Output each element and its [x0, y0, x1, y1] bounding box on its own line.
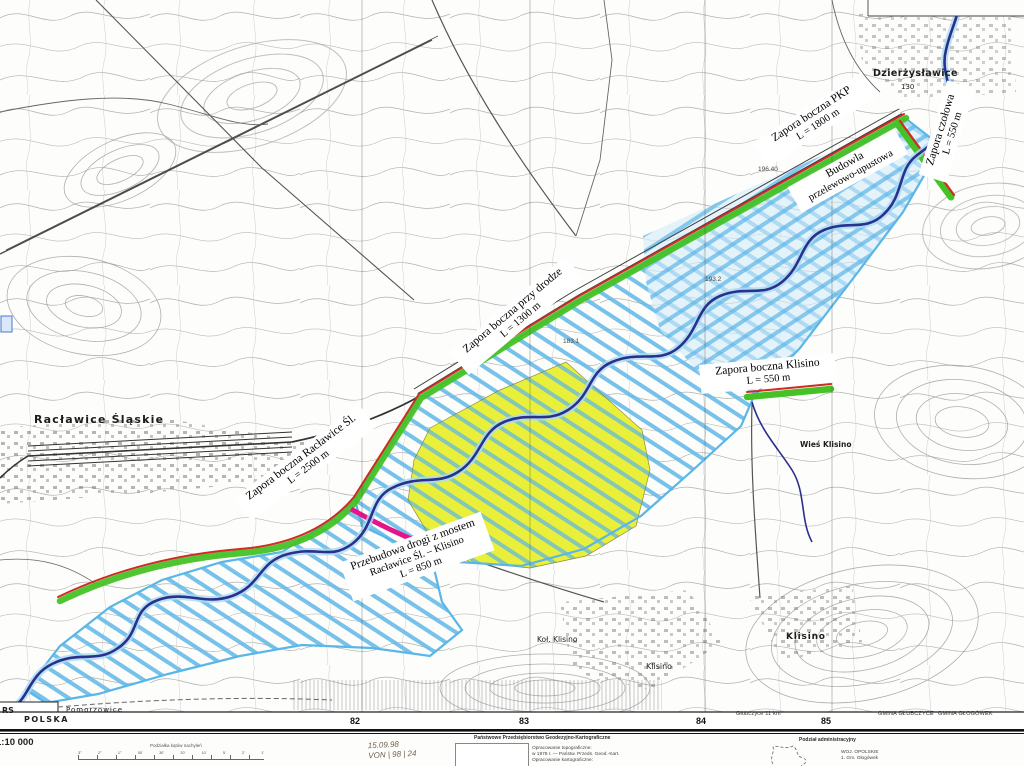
- map-canvas: [0, 0, 1024, 734]
- spot-height: 183.1: [563, 338, 579, 345]
- scale-text: 1:10 000: [0, 737, 34, 748]
- tick-label: 50': [138, 751, 143, 755]
- town-kol-klisino: Koł. Klisino: [537, 635, 577, 644]
- slope-hachures: [292, 680, 662, 710]
- ppgk-heading: Państwowe Przedsiębiorstwo Geodezyjno-Ka…: [474, 735, 610, 741]
- grid-number-82: 82: [350, 716, 360, 726]
- spot-height: 193.2: [705, 276, 721, 283]
- grid-number-85: 85: [821, 716, 831, 726]
- country-label-polska: POLSKA: [24, 715, 69, 724]
- tick-label: 1°: [118, 751, 122, 755]
- tick-label: 2': [242, 751, 245, 755]
- tick-label: 5': [223, 751, 226, 755]
- town-dzierzyslawice: Dzierżysławice: [873, 68, 958, 79]
- town-klisino: Klisino: [786, 632, 826, 642]
- legend-chip: [1, 316, 12, 332]
- slope-scale-label: Podziałka kątów nachyleń: [150, 743, 202, 748]
- admin-sketch-outline: [765, 744, 835, 766]
- handwritten-ref: VON | 98 | 24: [368, 748, 417, 760]
- tick-label: 2°: [98, 751, 102, 755]
- slope-scale-ruler: [78, 755, 264, 760]
- ppgk-credits: Opracowanie topograficzne: w 1978 r. — P…: [532, 746, 619, 764]
- town-wies-klisino: Wieś Klisino: [800, 440, 852, 449]
- scanned-topo-map: Zapora boczna PKP L = 1800 m Zapora czoł…: [0, 0, 1024, 766]
- tick-label: 20': [180, 751, 185, 755]
- edge-label-glubczyce-distance: Głubczyce 11 km: [736, 711, 781, 717]
- grid-number-83: 83: [519, 716, 529, 726]
- sheet-corner-frame: [868, 0, 1024, 16]
- slope-scale-bar: 3° 2° 1° 50' 30' 20' 10' 5' 2' 1': [78, 751, 264, 760]
- edge-label-gmina-glogowek: GMINA GŁOGÓWEK: [938, 711, 993, 717]
- tick-label: 1': [261, 751, 264, 755]
- town-pomorzowice: Pomorzowice: [66, 706, 123, 714]
- edge-label-gmina-glubczyce: GMINA GŁUBCZYCE: [878, 711, 934, 717]
- tick-label: 30': [159, 751, 164, 755]
- admin-division-list: WOJ. OPOLSKIE 1. Gm. Głogówek: [841, 750, 879, 762]
- handwritten-note: 15.09.98 VON | 98 | 24: [368, 739, 417, 761]
- tick-label: 10': [202, 751, 207, 755]
- ppgk-line: Opracowanie kartograficzne:: [532, 758, 619, 764]
- sheet-code-rs: RS: [2, 706, 14, 715]
- spot-height-130: 130: [901, 83, 914, 91]
- stamp-box: [455, 743, 529, 766]
- town-raclawice-slaskie: Racławice Śląskie: [34, 413, 164, 426]
- admin-line: 1. Gm. Głogówek: [841, 756, 879, 762]
- town-klisino-small: Klisino: [646, 662, 672, 671]
- grid-number-84: 84: [696, 716, 706, 726]
- admin-division-heading: Podział administracyjny: [799, 737, 856, 743]
- tick-label: 3°: [78, 751, 82, 755]
